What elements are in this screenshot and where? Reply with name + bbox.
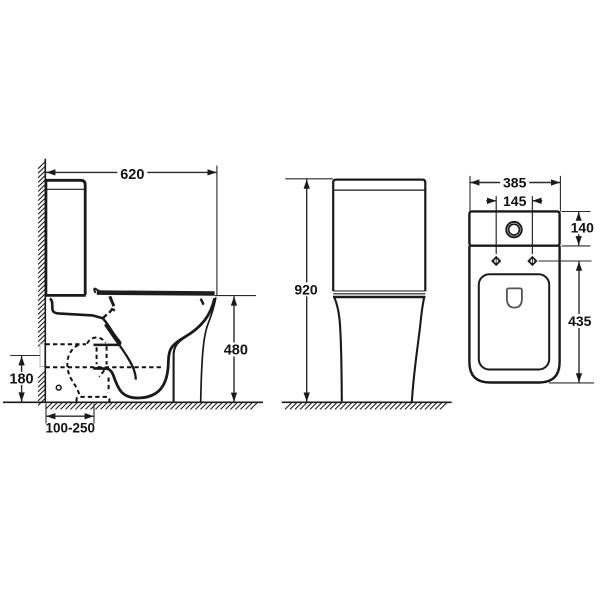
svg-text:145: 145 <box>503 193 527 209</box>
svg-text:100-250: 100-250 <box>46 421 96 436</box>
svg-text:480: 480 <box>224 343 248 359</box>
svg-text:920: 920 <box>294 281 318 297</box>
svg-text:180: 180 <box>9 372 33 388</box>
svg-text:620: 620 <box>120 167 144 183</box>
svg-text:385: 385 <box>503 175 527 191</box>
svg-text:140: 140 <box>571 220 595 236</box>
svg-text:435: 435 <box>568 313 592 329</box>
